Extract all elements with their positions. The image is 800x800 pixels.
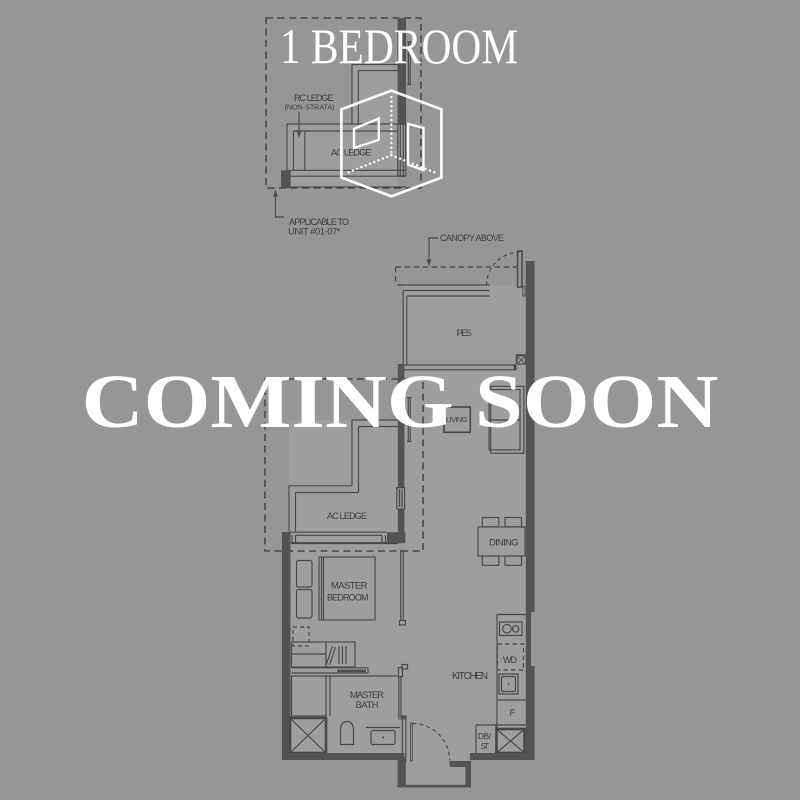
- svg-text:KITCHEN: KITCHEN: [452, 671, 488, 682]
- svg-text:AC LEDGE: AC LEDGE: [331, 148, 372, 158]
- svg-text:DINING: DINING: [489, 537, 519, 548]
- svg-text:MASTER: MASTER: [331, 581, 368, 592]
- svg-text:RC LEDGE: RC LEDGE: [294, 93, 334, 103]
- svg-text:CANOPY ABOVE: CANOPY ABOVE: [440, 233, 504, 243]
- svg-text:AC LEDGE: AC LEDGE: [327, 511, 367, 521]
- svg-text:DB/: DB/: [478, 732, 492, 741]
- svg-text:ST: ST: [481, 742, 490, 751]
- svg-text:PES: PES: [457, 328, 473, 339]
- svg-text:(NON-STRATA): (NON-STRATA): [285, 103, 335, 112]
- svg-text:UNIT #01-07*: UNIT #01-07*: [288, 226, 341, 237]
- svg-text:F: F: [510, 708, 516, 719]
- svg-text:BATH: BATH: [356, 700, 379, 711]
- svg-text:BEDROOM: BEDROOM: [327, 593, 369, 603]
- svg-text:WD: WD: [503, 655, 518, 665]
